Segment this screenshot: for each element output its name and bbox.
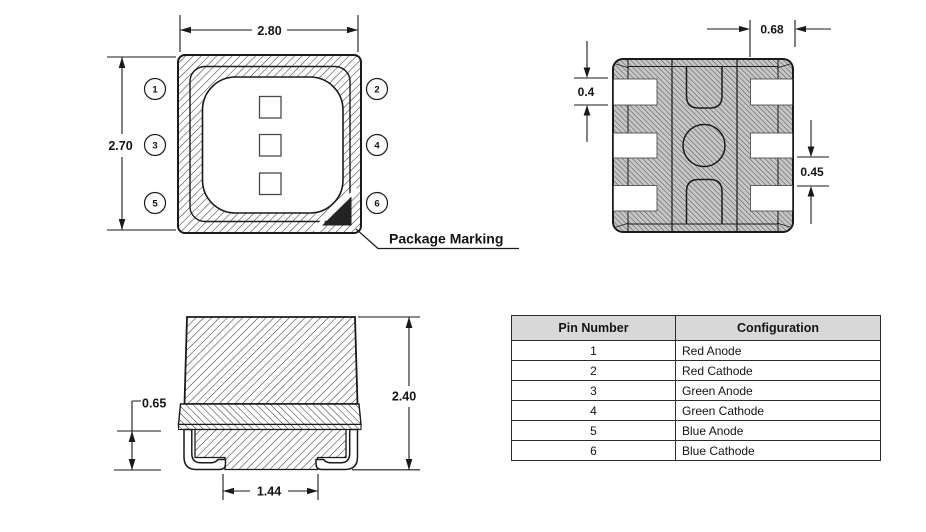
pin-number-cell: 6 <box>512 441 676 461</box>
flange-band <box>179 404 362 425</box>
dim-pad-width: 0.68 <box>707 20 831 57</box>
pin-5-label: 5 <box>152 198 158 209</box>
pin-callout-4: 4 <box>367 135 388 156</box>
pin-number-header: Pin Number <box>512 316 676 341</box>
pin-number-cell: 2 <box>512 361 676 381</box>
dim-package-height-label: 2.70 <box>108 139 132 153</box>
pin-number-cell: 1 <box>512 341 676 361</box>
configuration-header: Configuration <box>676 316 881 341</box>
configuration-cell: Red Cathode <box>676 361 881 381</box>
table-row: 1 Red Anode <box>512 341 881 361</box>
side-view: 2.40 0.65 1.44 <box>114 317 421 500</box>
pin-3-label: 3 <box>152 140 157 151</box>
dim-total-height: 2.40 <box>352 317 421 470</box>
pin-4-label: 4 <box>374 140 380 151</box>
pad-3 <box>614 133 658 158</box>
table-row: 5 Blue Anode <box>512 421 881 441</box>
pad-4 <box>751 133 793 158</box>
dim-bottom-pad-width: 1.44 <box>223 474 318 500</box>
configuration-cell: Red Anode <box>676 341 881 361</box>
pin-2-label: 2 <box>374 84 379 95</box>
table-row: 2 Red Cathode <box>512 361 881 381</box>
dim-pad-height: 0.4 <box>574 41 608 142</box>
pin-number-cell: 3 <box>512 381 676 401</box>
dim-bottom-pad-width-label: 1.44 <box>257 485 281 499</box>
pin-callout-1: 1 <box>145 79 166 100</box>
pin-6-label: 6 <box>374 198 379 209</box>
pin-number-cell: 5 <box>512 421 676 441</box>
dim-lead-height-label: 0.65 <box>142 397 166 411</box>
dim-pad-width-label: 0.68 <box>760 23 784 37</box>
table-header-row: Pin Number Configuration <box>512 316 881 341</box>
package-marking-label: Package Marking <box>389 231 503 247</box>
configuration-cell: Blue Cathode <box>676 441 881 461</box>
dim-package-width-label: 2.80 <box>257 24 281 38</box>
die-green <box>260 135 282 157</box>
led-package-drawing-page: 2.80 2.70 1 <box>0 0 926 532</box>
table-row: 4 Green Cathode <box>512 401 881 421</box>
pin-configuration-table: Pin Number Configuration 1 Red Anode 2 R… <box>511 315 880 461</box>
led-dies <box>260 97 282 195</box>
pad-5 <box>614 186 658 212</box>
configuration-cell: Blue Anode <box>676 421 881 441</box>
pin-callout-2: 2 <box>367 79 388 100</box>
die-red <box>260 97 282 119</box>
dim-total-height-label: 2.40 <box>392 390 416 404</box>
pad-2 <box>751 79 793 105</box>
dim-pad-pitch: 0.45 <box>797 120 829 224</box>
pin-callout-6: 6 <box>367 193 388 214</box>
pin-callout-3: 3 <box>145 135 166 156</box>
pin-callout-5: 5 <box>145 193 166 214</box>
die-blue <box>260 173 282 195</box>
dim-lead-height: 0.65 <box>114 397 166 471</box>
dim-pad-height-label: 0.4 <box>578 85 595 99</box>
pad-6 <box>751 186 793 212</box>
dim-package-width: 2.80 <box>180 15 358 52</box>
bottom-view: 0.68 0.4 0.45 <box>574 20 831 232</box>
configuration-cell: Green Cathode <box>676 401 881 421</box>
top-view: 2.80 2.70 1 <box>101 15 519 249</box>
pin-1-label: 1 <box>152 84 158 95</box>
lens-body <box>185 317 358 404</box>
table-row: 3 Green Anode <box>512 381 881 401</box>
dim-pad-pitch-label: 0.45 <box>800 165 824 179</box>
pad-1 <box>614 79 658 105</box>
pin-number-cell: 4 <box>512 401 676 421</box>
flange-strip <box>179 425 362 430</box>
table-row: 6 Blue Cathode <box>512 441 881 461</box>
configuration-cell: Green Anode <box>676 381 881 401</box>
